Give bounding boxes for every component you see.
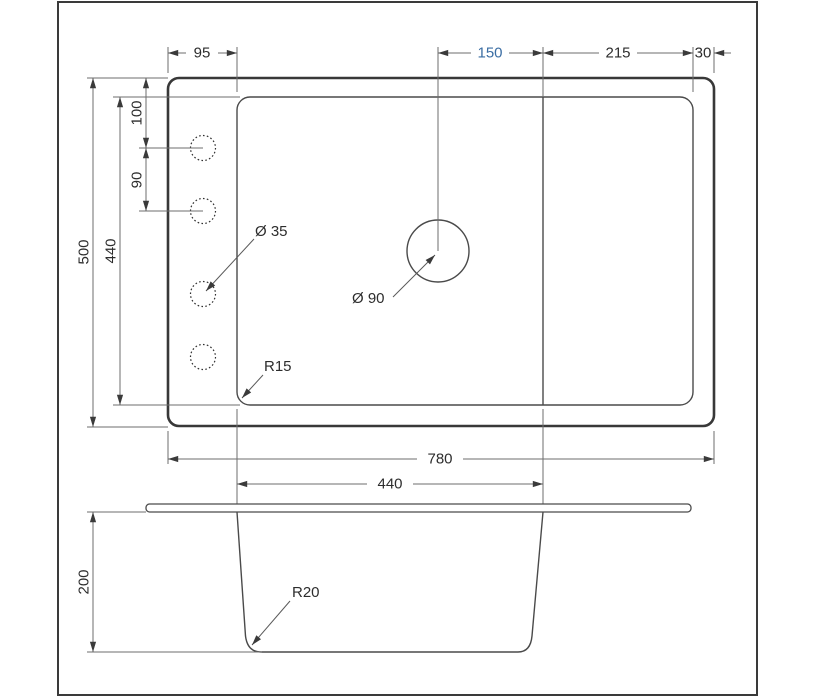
rim-profile <box>146 504 691 512</box>
dim-hole-pitch: 90 <box>129 172 146 189</box>
sink-technical-drawing: 95 150 215 30 500 440 100 90 <box>0 0 816 700</box>
dim-left-margin: 95 <box>194 45 211 62</box>
top-view <box>168 47 714 426</box>
sink-outer-outline <box>168 78 714 426</box>
dim-right-margin: 30 <box>695 45 712 62</box>
dim-outer-depth: 500 <box>76 239 93 264</box>
callout-bottom-radius: R20 <box>292 584 320 601</box>
callout-bowl-corner-radius: R15 <box>264 358 292 375</box>
dim-side-bowl-depth: 200 <box>76 569 93 594</box>
leader-bottom-radius <box>252 601 290 645</box>
callout-drain-hole: Ø 90 <box>352 290 385 307</box>
drawing-page: 95 150 215 30 500 440 100 90 <box>0 0 816 700</box>
side-view: 200 R20 <box>76 504 692 652</box>
dim-bowl-width: 440 <box>377 476 402 493</box>
callout-faucet-hole: Ø 35 <box>255 223 288 240</box>
dim-edge-to-first-hole: 100 <box>129 100 146 125</box>
dim-outer-width: 780 <box>427 451 452 468</box>
dim-center-to-bowl-edge: 150 <box>477 45 502 62</box>
dim-drainboard-width: 215 <box>605 45 630 62</box>
dim-bowl-depth: 440 <box>103 238 120 263</box>
bowl-profile <box>237 512 543 652</box>
